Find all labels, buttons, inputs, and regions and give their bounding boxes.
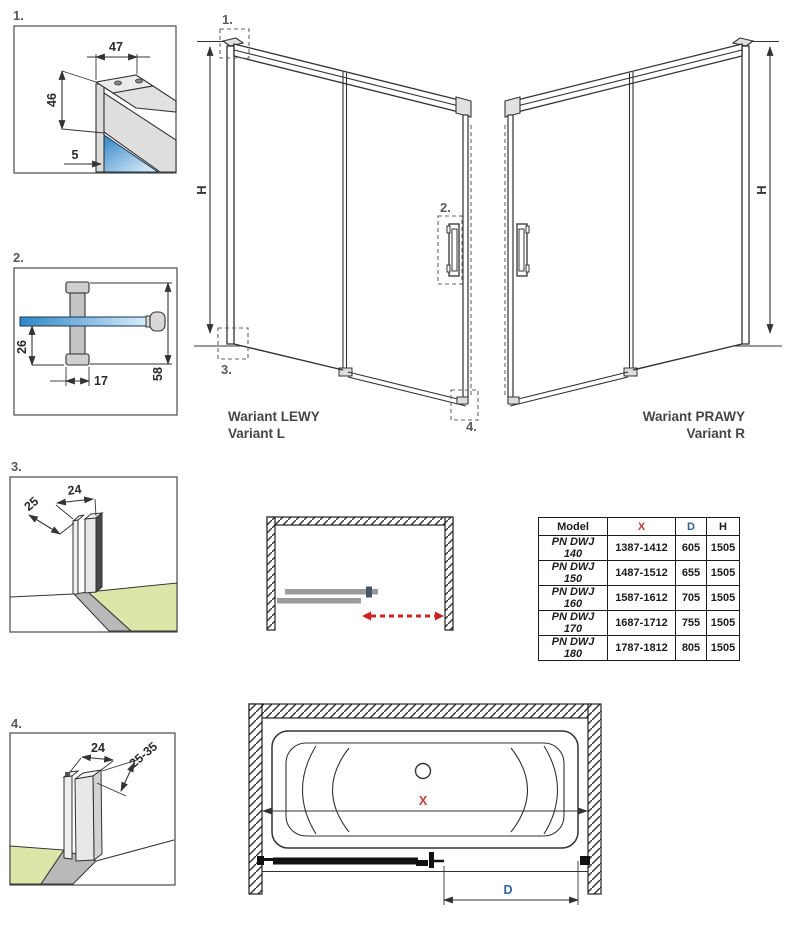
h-value: 1505 (707, 586, 740, 611)
detail-4-label: 4. (11, 716, 22, 731)
model-name: PN DWJ 160 (539, 586, 608, 611)
x-range: 1787-1812 (608, 636, 676, 661)
left-door-drawing: H 1. 2. 3. 4. Wariant LEWY V (194, 12, 478, 441)
glass-panel-section (20, 317, 148, 326)
sliding-door-section (257, 852, 590, 872)
seal-strip-front (64, 776, 72, 859)
size-table: Model X D H PN DWJ 140 1387-1412 605 150… (538, 517, 740, 661)
back-plate-front (73, 520, 78, 594)
x-range: 1487-1512 (608, 561, 676, 586)
variant-left-title: Wariant LEWY (228, 409, 320, 424)
height-label-left: H (194, 185, 209, 194)
x-range: 1387-1412 (608, 536, 676, 561)
table-row: PN DWJ 140 1387-1412 605 1505 (539, 536, 740, 561)
sliding-panel-bar (285, 589, 378, 595)
d-value: 655 (676, 561, 707, 586)
table-row: PN DWJ 160 1587-1612 705 1505 (539, 586, 740, 611)
door-handle-right-variant (517, 224, 529, 276)
callout-1: 1. (222, 12, 233, 27)
detail-1-panel: 1. 47 46 5 (13, 8, 176, 173)
plan-view-sliding (267, 517, 453, 630)
handle-marker (366, 587, 372, 598)
model-name: PN DWJ 150 (539, 561, 608, 586)
detail-1-label: 1. (13, 8, 24, 23)
dim-24: 24 (91, 741, 105, 755)
wall-profile-cap (223, 38, 243, 46)
wall-profile-right (742, 46, 749, 344)
door-glass-section (273, 858, 418, 865)
bathtub-outline (272, 731, 578, 848)
wall-left (249, 704, 262, 894)
d-dimension-label: D (503, 883, 512, 897)
handle-top-cap (66, 282, 89, 293)
table-row: PN DWJ 170 1687-1712 755 1505 (539, 611, 740, 636)
rail-end-cap (456, 97, 471, 117)
door-handle-left-variant (447, 224, 459, 276)
screw-hole (115, 81, 122, 85)
table-row: PN DWJ 180 1787-1812 805 1505 (539, 636, 740, 661)
h-value: 1505 (707, 611, 740, 636)
detail-3-panel: 3. 24 25 (10, 459, 177, 632)
dim-17: 17 (94, 374, 108, 388)
bottom-profile-front (75, 776, 94, 861)
sliding-panel-stile (463, 115, 468, 403)
sliding-panel-stile (508, 115, 513, 403)
col-header-d: D (676, 518, 707, 536)
fixed-panel-bar (277, 598, 361, 604)
variant-left-subtitle: Variant L (228, 426, 285, 441)
handle-bottom-cap (66, 354, 89, 365)
x-range: 1587-1612 (608, 586, 676, 611)
col-header-model: Model (539, 518, 608, 536)
callout-4: 4. (466, 419, 477, 434)
variant-right-subtitle: Variant R (686, 426, 745, 441)
size-table-header-row: Model X D H (539, 518, 740, 536)
right-door-drawing: H Wariant PRAWY Variant R (505, 38, 782, 441)
technical-drawing-page: 1. 47 46 5 2. (0, 0, 800, 950)
d-value: 705 (676, 586, 707, 611)
screw-hole (136, 79, 143, 83)
col-header-x: X (608, 518, 676, 536)
col-header-h: H (707, 518, 740, 536)
detail-4-panel: 4. 24 25-35 (10, 716, 175, 885)
wall-bracket (580, 856, 590, 865)
detail-2-label: 2. (13, 250, 24, 265)
dim-46: 46 (45, 93, 59, 107)
model-name: PN DWJ 140 (539, 536, 608, 561)
table-row: PN DWJ 150 1487-1512 655 1505 (539, 561, 740, 586)
fixed-panel-bottom-edge (633, 344, 742, 370)
wall-right (588, 704, 601, 894)
d-value: 755 (676, 611, 707, 636)
slide-arrow-left-head (362, 612, 371, 621)
wall-profile (96, 84, 104, 172)
bathtub-plan-view: X D (249, 704, 601, 905)
fixed-panel-bottom-edge (234, 344, 343, 370)
shower-door-technical-drawing: 1. 47 46 5 2. (0, 0, 800, 950)
callout-3: 3. (221, 362, 232, 377)
dim-26: 26 (15, 340, 29, 354)
detail-2-panel: 2. 26 17 58 (13, 250, 177, 415)
door-handle-section (429, 852, 434, 868)
wall-top (249, 704, 591, 718)
model-name: PN DWJ 170 (539, 611, 608, 636)
x-dimension-label: X (419, 794, 428, 808)
variant-right-title: Wariant PRAWY (643, 409, 745, 424)
dim-24: 24 (67, 482, 83, 498)
wall-right (445, 517, 453, 630)
wall-profile-side (96, 513, 102, 592)
drain (416, 764, 431, 779)
seal-clip (65, 772, 70, 776)
wall-left (267, 517, 275, 630)
h-value: 1505 (707, 636, 740, 661)
x-range: 1687-1712 (608, 611, 676, 636)
model-name: PN DWJ 180 (539, 636, 608, 661)
d-value: 605 (676, 536, 707, 561)
knob-end-cap (150, 312, 165, 331)
rail-end-cap (505, 97, 520, 117)
wall-profile-front (85, 518, 96, 593)
slide-arrow-right-head (435, 612, 444, 621)
wall-profile-left (227, 46, 234, 344)
d-value: 805 (676, 636, 707, 661)
height-label-right: H (754, 185, 769, 194)
dim-47: 47 (109, 40, 123, 54)
dim-5: 5 (72, 148, 79, 162)
h-value: 1505 (707, 561, 740, 586)
detail-3-label: 3. (11, 459, 22, 474)
detail-2-frame (14, 268, 177, 415)
corner-roller (457, 397, 468, 404)
corner-roller (508, 397, 519, 404)
wall-top (267, 517, 453, 525)
dim-58: 58 (151, 367, 165, 381)
wall-profile-cap (733, 38, 753, 46)
h-value: 1505 (707, 536, 740, 561)
callout-2: 2. (440, 200, 451, 215)
